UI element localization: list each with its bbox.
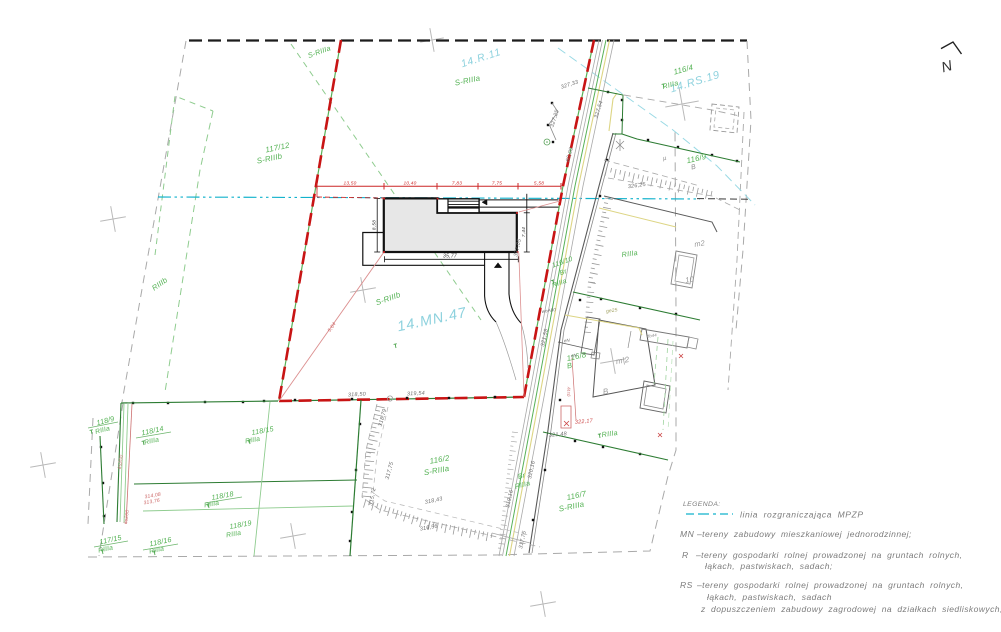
svg-text:MN: MN — [680, 529, 695, 539]
svg-text:–tereny gospodarki rolnej prow: –tereny gospodarki rolnej prowadzonej na… — [695, 550, 963, 560]
svg-text:13,50: 13,50 — [343, 180, 356, 186]
svg-text:7,83: 7,83 — [452, 180, 462, 186]
svg-text:319,54: 319,54 — [407, 391, 425, 398]
svg-text:linia rozgraniczająca MPZP: linia rozgraniczająca MPZP — [740, 510, 864, 520]
svg-text:7,44: 7,44 — [521, 227, 526, 237]
svg-text:35,77: 35,77 — [443, 254, 457, 260]
svg-text:10,40: 10,40 — [403, 180, 416, 186]
svg-text:z dopuszczeniem zabudowy zagro: z dopuszczeniem zabudowy zagrodowej na d… — [700, 604, 1001, 614]
svg-text:8,58: 8,58 — [371, 220, 376, 230]
svg-text:–tereny gospodarki rolnej prow: –tereny gospodarki rolnej prowadzonej na… — [696, 580, 964, 590]
svg-text:5,58: 5,58 — [534, 180, 544, 186]
svg-text:7,75: 7,75 — [492, 180, 502, 186]
svg-text:łąkach, pastwiskach, sadach;: łąkach, pastwiskach, sadach; — [705, 561, 833, 571]
svg-text:–tereny zabudowy mieszkaniowej: –tereny zabudowy mieszkaniowej jednorodz… — [696, 529, 912, 539]
svg-text:R: R — [682, 550, 689, 560]
svg-text:LEGENDA:: LEGENDA: — [683, 501, 721, 508]
svg-text:318,50: 318,50 — [348, 391, 367, 398]
svg-text:łąkach, pastwiskach, sadach: łąkach, pastwiskach, sadach — [707, 592, 832, 602]
svg-text:RS: RS — [680, 580, 693, 590]
